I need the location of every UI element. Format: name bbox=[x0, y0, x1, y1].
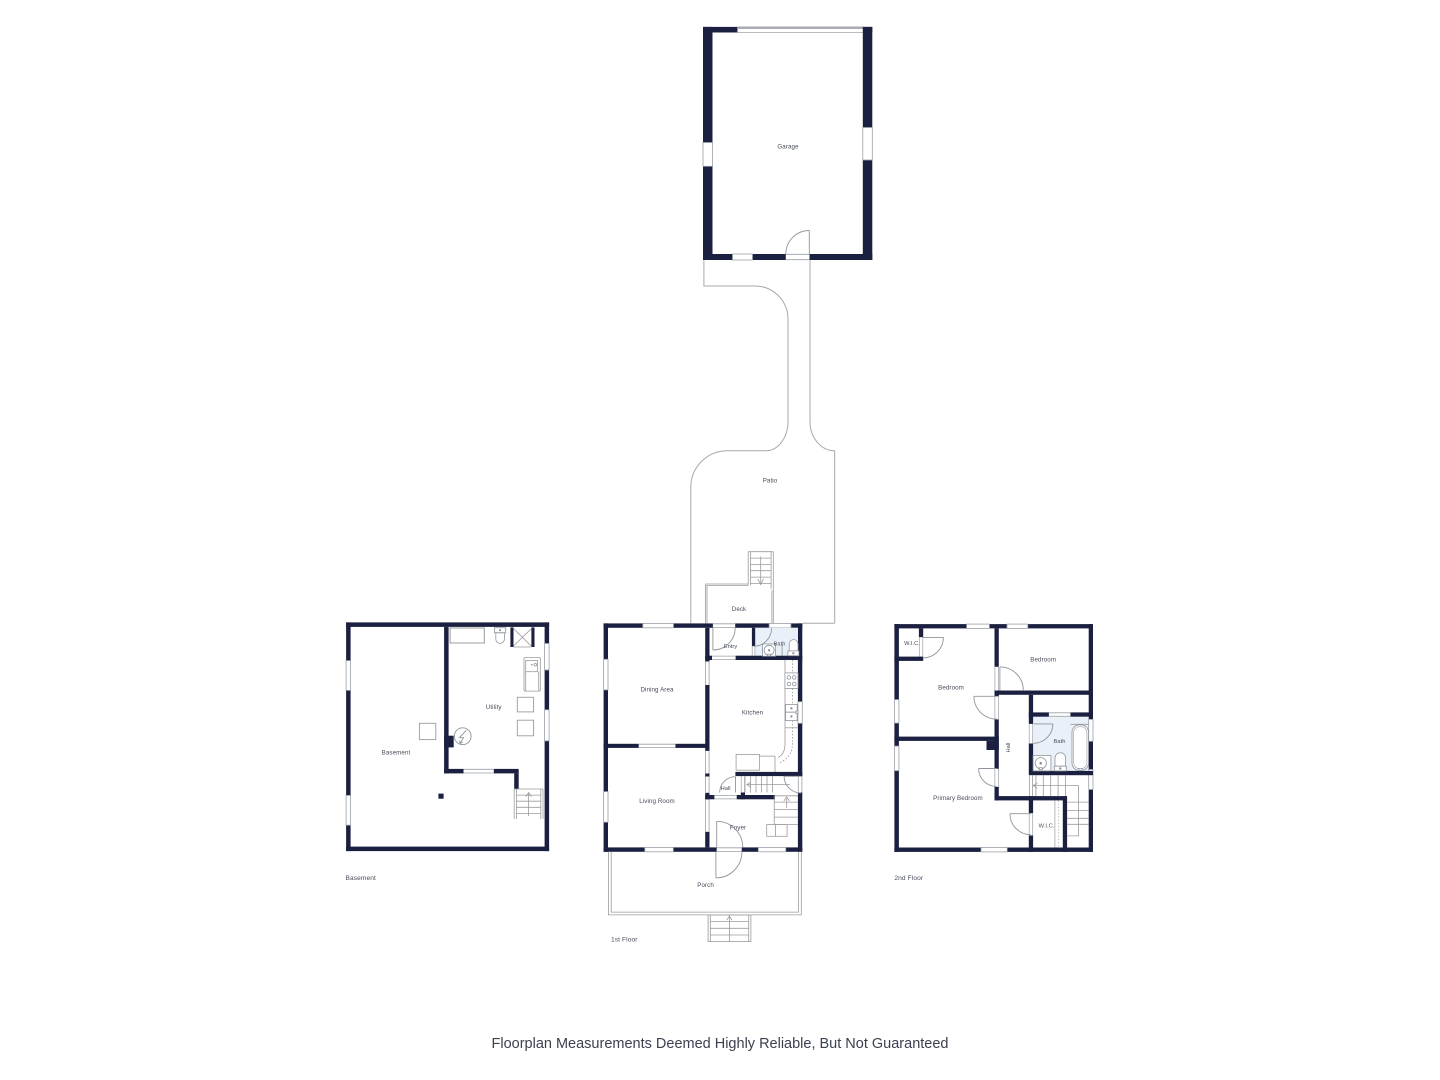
svg-text:Living Room: Living Room bbox=[639, 798, 675, 805]
svg-text:W.I.C.: W.I.C. bbox=[904, 641, 920, 647]
svg-text:Bedroom: Bedroom bbox=[1030, 656, 1056, 663]
svg-text:Floorplan Measurements Deemed: Floorplan Measurements Deemed Highly Rel… bbox=[492, 1036, 949, 1052]
svg-text:Utility: Utility bbox=[486, 704, 503, 711]
svg-text:Kitchen: Kitchen bbox=[742, 709, 764, 716]
svg-text:Patio: Patio bbox=[763, 478, 778, 485]
svg-text:Deck: Deck bbox=[732, 606, 747, 613]
svg-text:Hall: Hall bbox=[1006, 743, 1012, 753]
svg-text:Foyer: Foyer bbox=[730, 824, 746, 831]
svg-text:Bath: Bath bbox=[1054, 739, 1066, 745]
svg-text:Dining Area: Dining Area bbox=[640, 687, 674, 694]
svg-text:Hall: Hall bbox=[721, 786, 731, 792]
svg-text:Garage: Garage bbox=[777, 144, 799, 151]
svg-text:Basement: Basement bbox=[382, 749, 411, 756]
svg-text:Primary Bedroom: Primary Bedroom bbox=[933, 795, 983, 802]
svg-text:1st Floor: 1st Floor bbox=[611, 937, 638, 944]
svg-text:Bath: Bath bbox=[774, 642, 786, 648]
svg-text:Bedroom: Bedroom bbox=[938, 685, 964, 692]
svg-text:Entry: Entry bbox=[724, 644, 738, 650]
svg-text:W.I.C.: W.I.C. bbox=[1039, 823, 1055, 829]
svg-text:Basement: Basement bbox=[346, 875, 377, 882]
svg-text:2nd Floor: 2nd Floor bbox=[894, 875, 923, 882]
svg-text:Porch: Porch bbox=[697, 882, 714, 889]
